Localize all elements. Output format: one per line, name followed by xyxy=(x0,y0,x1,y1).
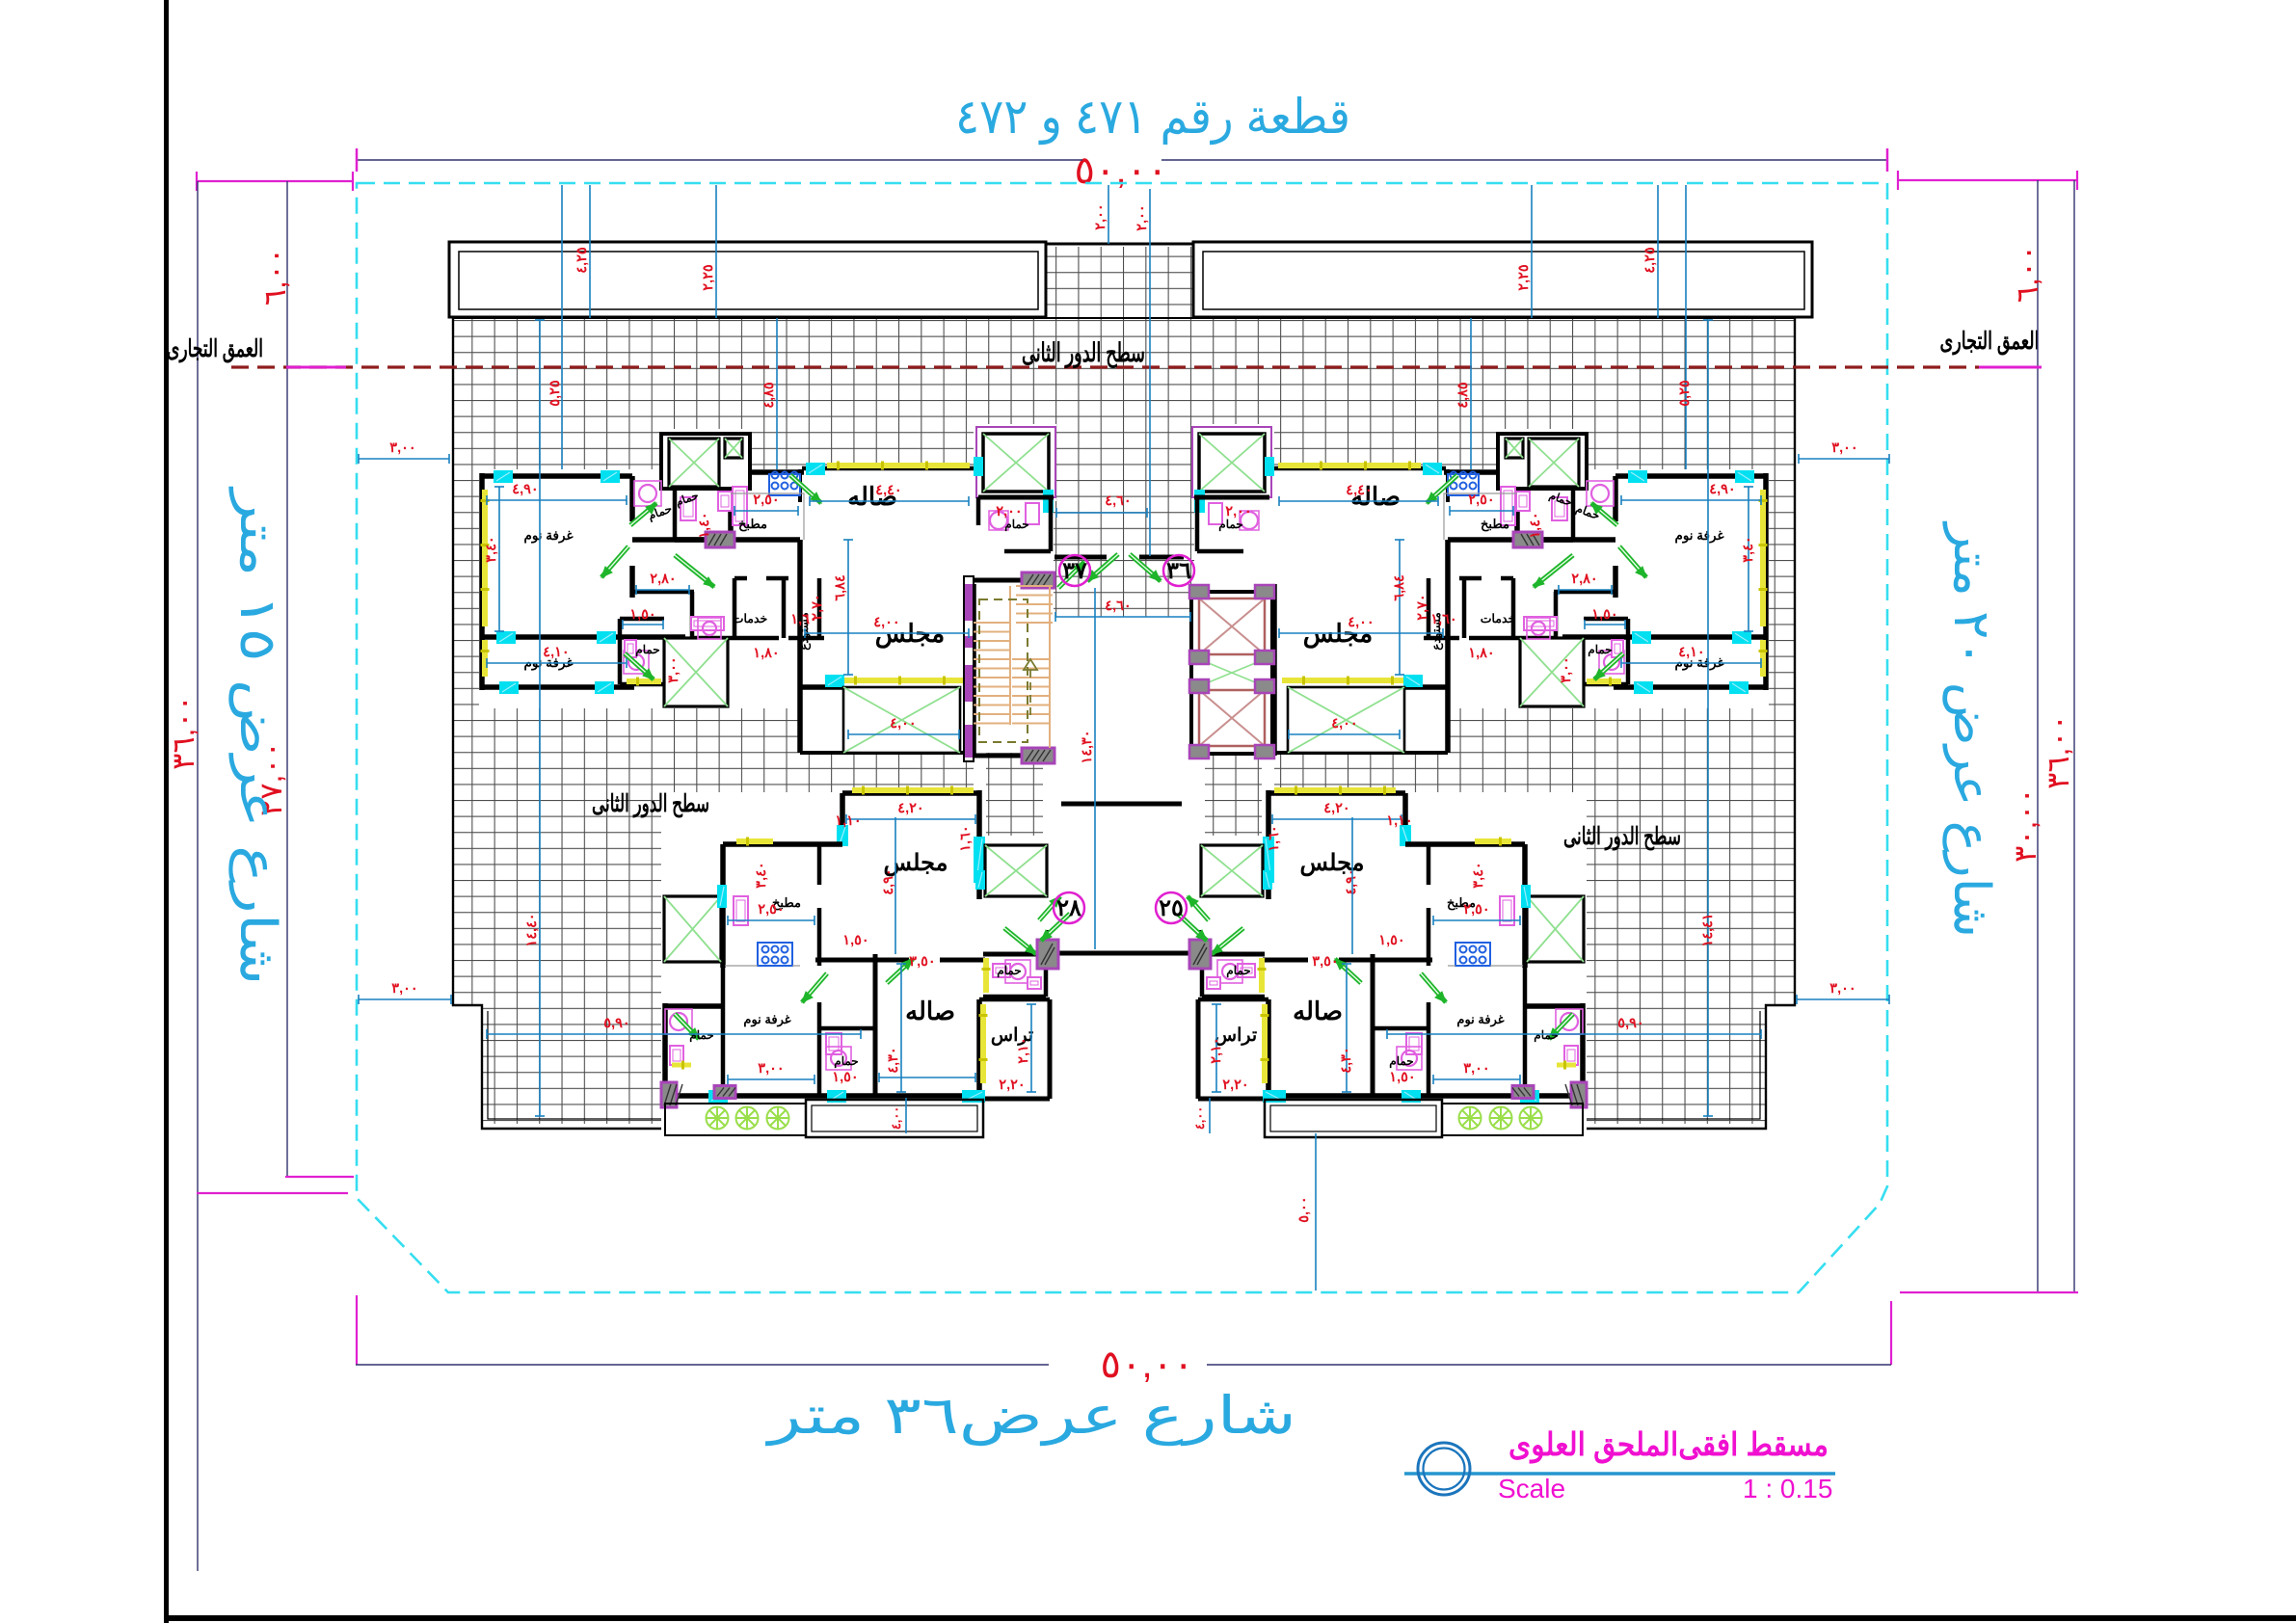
svg-text:٤,١٠: ٤,١٠ xyxy=(1678,645,1704,660)
svg-text:٤,٢٥: ٤,٢٥ xyxy=(1642,247,1658,274)
svg-text:٤,٩٠: ٤,٩٠ xyxy=(1709,482,1735,497)
svg-text:٤,٠٠: ٤,٠٠ xyxy=(890,716,916,732)
svg-text:٤,٢٠: ٤,٢٠ xyxy=(897,801,923,816)
svg-text:العمق التجارى: العمق التجارى xyxy=(167,335,263,363)
svg-text:٤,٤٠: ٤,٤٠ xyxy=(1346,483,1372,498)
svg-text:٣,٤٠: ٣,٤٠ xyxy=(484,536,499,562)
svg-text:٤,٩٠: ٤,٩٠ xyxy=(881,868,896,894)
svg-text:٥,٠٠: ٥,٠٠ xyxy=(1296,1196,1312,1222)
svg-text:خدمات: خدمات xyxy=(1481,612,1516,625)
svg-text:حمام: حمام xyxy=(1004,518,1028,532)
svg-text:٣,٤٠: ٣,٤٠ xyxy=(1471,862,1486,888)
svg-text:سطح الدور الثانى: سطح الدور الثانى xyxy=(1563,823,1681,851)
svg-text:٢,٥٠: ٢,٥٠ xyxy=(1468,492,1494,508)
svg-text:٣٠,٠٠: ٣٠,٠٠ xyxy=(2008,787,2042,863)
svg-text:١,٤٠: ١,٤٠ xyxy=(697,512,712,538)
svg-text:غرفة نوم: غرفة نوم xyxy=(523,528,574,544)
svg-text:٣,٠٠: ٣,٠٠ xyxy=(758,1061,784,1077)
svg-text:١,٦٠: ١,٦٠ xyxy=(1267,825,1282,851)
svg-text:٥,٢٥: ٥,٢٥ xyxy=(1677,380,1693,407)
svg-text:١,٥٠: ١,٥٠ xyxy=(1378,933,1404,948)
svg-text:٥,٩٠: ٥,٩٠ xyxy=(603,1016,629,1031)
svg-text:٢٨: ٢٨ xyxy=(1056,895,1081,921)
svg-text:٢,٨٠: ٢,٨٠ xyxy=(650,572,676,587)
svg-text:٦,٠٠: ٦,٠٠ xyxy=(257,248,292,306)
svg-text:1 : 0.15: 1 : 0.15 xyxy=(1743,1474,1832,1503)
svg-text:١,٦٠: ١,٦٠ xyxy=(958,825,974,851)
svg-text:٣,٠٠: ٣,٠٠ xyxy=(1559,656,1574,682)
svg-text:حمام: حمام xyxy=(997,964,1021,978)
svg-text:٣,٤٠: ٣,٤٠ xyxy=(754,862,769,888)
svg-text:٢,٧٠: ٢,٧٠ xyxy=(1415,594,1430,620)
svg-text:٤,٤٠: ٤,٤٠ xyxy=(875,483,901,498)
svg-text:٤,٨٥: ٤,٨٥ xyxy=(1455,382,1471,409)
svg-text:٢,١٠: ٢,١٠ xyxy=(1209,1037,1224,1063)
svg-text:٤,٠٠: ٤,٠٠ xyxy=(1331,716,1357,732)
svg-text:٢,٥٠: ٢,٥٠ xyxy=(1463,902,1489,918)
svg-text:٣٧: ٣٧ xyxy=(1062,558,1087,584)
svg-text:غرفة نوم: غرفة نوم xyxy=(1674,528,1724,544)
svg-text:٥٠,٠٠: ٥٠,٠٠ xyxy=(1100,1344,1193,1386)
svg-text:١,٥٠: ١,٥٠ xyxy=(1389,1070,1415,1085)
svg-text:٢,٢٥: ٢,٢٥ xyxy=(701,264,716,291)
svg-text:شارع عرض ٢٠ متر: شارع عرض ٢٠ متر xyxy=(1942,520,1999,938)
svg-text:غرفة نوم: غرفة نوم xyxy=(743,1012,790,1027)
svg-text:١,٦٠: ١,٦٠ xyxy=(1430,612,1456,627)
svg-text:٣,٤٠: ٣,٤٠ xyxy=(1741,536,1756,562)
svg-text:حمام: حمام xyxy=(834,1054,858,1069)
svg-text:٥,٩٠: ٥,٩٠ xyxy=(1617,1016,1643,1031)
svg-text:١,١٠: ١,١٠ xyxy=(1386,813,1412,829)
svg-text:٤,٠٠: ٤,٠٠ xyxy=(1192,1106,1207,1131)
svg-text:٣,٠٠: ٣,٠٠ xyxy=(1829,981,1855,997)
svg-text:١,٦٠: ١,٦٠ xyxy=(790,612,816,627)
svg-text:٢,٠٠: ٢,٠٠ xyxy=(1225,504,1251,519)
svg-text:٢,٠٠: ٢,٠٠ xyxy=(1135,204,1150,230)
svg-text:١,٥٠: ١,٥٠ xyxy=(629,607,655,623)
svg-text:١,٨٠: ١,٨٠ xyxy=(753,646,779,661)
svg-text:العمق التجارى: العمق التجارى xyxy=(1940,328,2040,356)
svg-text:٣,٠٠: ٣,٠٠ xyxy=(391,981,417,997)
svg-text:حمام: حمام xyxy=(1218,518,1242,532)
svg-text:٣٦,٠٠: ٣٦,٠٠ xyxy=(2041,714,2075,789)
svg-text:٢,٥٠: ٢,٥٠ xyxy=(753,492,779,508)
svg-text:٤,٢٥: ٤,٢٥ xyxy=(574,247,590,274)
svg-text:١,٥٠: ١,٥٠ xyxy=(832,1070,858,1085)
svg-text:٤,٠٠: ٤,٠٠ xyxy=(873,615,899,630)
svg-text:سطح الدور الثانى: سطح الدور الثانى xyxy=(592,790,709,818)
svg-text:٤,٩٠: ٤,٩٠ xyxy=(512,482,538,497)
svg-text:شارع عرض٣٦ متر: شارع عرض٣٦ متر xyxy=(764,1387,1296,1447)
svg-text:٤,٣٠: ٤,٣٠ xyxy=(1339,1047,1354,1073)
svg-text:٢,١٠: ٢,١٠ xyxy=(1016,1037,1031,1063)
svg-text:حمام: حمام xyxy=(1588,643,1612,657)
svg-text:٤,٦٠: ٤,٦٠ xyxy=(1105,493,1131,509)
svg-text:٢,٥٠: ٢,٥٠ xyxy=(758,902,784,918)
svg-text:حمام: حمام xyxy=(689,1028,713,1043)
svg-text:مطبخ: مطبخ xyxy=(738,517,767,532)
svg-text:٣,٥٠: ٣,٥٠ xyxy=(909,954,935,970)
svg-text:حمام: حمام xyxy=(1389,1054,1413,1069)
svg-text:٣,٠٠: ٣,٠٠ xyxy=(1463,1061,1489,1077)
svg-text:٢,٢٥: ٢,٢٥ xyxy=(1516,264,1532,291)
svg-text:١٤,٤١: ١٤,٤١ xyxy=(1700,913,1716,946)
svg-text:٤,٩٠: ٤,٩٠ xyxy=(1344,868,1359,894)
svg-text:٢,٠٠: ٢,٠٠ xyxy=(1093,203,1108,229)
svg-text:مسقط افقى‌الملحق العلوى: مسقط افقى‌الملحق العلوى xyxy=(1508,1426,1829,1464)
svg-text:٦,٨٤: ٦,٨٤ xyxy=(833,574,848,601)
svg-text:١٤,٣٠: ١٤,٣٠ xyxy=(1080,730,1095,763)
svg-text:٤,٠٠: ٤,٠٠ xyxy=(1348,615,1374,630)
svg-text:خدمات: خدمات xyxy=(733,612,768,625)
svg-text:قطعة رقم ٤٧١ و ٤٧٢: قطعة رقم ٤٧١ و ٤٧٢ xyxy=(955,90,1350,146)
svg-text:حمام: حمام xyxy=(1226,964,1250,978)
svg-text:٦,٨٤: ٦,٨٤ xyxy=(1392,574,1407,601)
svg-text:٢,٨٠: ٢,٨٠ xyxy=(1571,572,1597,587)
svg-text:١٤,٤٠: ١٤,٤٠ xyxy=(524,913,540,946)
svg-text:١,٥٠: ١,٥٠ xyxy=(842,933,868,948)
svg-text:مطبخ: مطبخ xyxy=(1481,517,1509,532)
svg-text:٥٠,٠٠: ٥٠,٠٠ xyxy=(1074,149,1167,192)
svg-text:غرفة نوم: غرفة نوم xyxy=(1456,1012,1504,1027)
svg-text:٤,١٠: ٤,١٠ xyxy=(543,645,569,660)
svg-text:١,١٠: ١,١٠ xyxy=(835,813,861,829)
svg-text:حمام: حمام xyxy=(1534,1028,1558,1043)
svg-text:سطح الدور الثانى: سطح الدور الثانى xyxy=(1022,338,1145,369)
svg-text:٦,٠٠: ٦,٠٠ xyxy=(2010,245,2044,303)
svg-text:٥,٢٥: ٥,٢٥ xyxy=(547,380,563,407)
svg-text:Scale: Scale xyxy=(1498,1474,1565,1503)
svg-text:صاله: صاله xyxy=(1293,997,1343,1025)
svg-text:حمام: حمام xyxy=(635,643,659,657)
svg-text:٣,٥٠: ٣,٥٠ xyxy=(1312,954,1338,970)
svg-text:٣,٠٠: ٣,٠٠ xyxy=(1831,440,1857,456)
svg-text:٢,٢٠: ٢,٢٠ xyxy=(999,1078,1025,1093)
svg-text:٣,٠٠: ٣,٠٠ xyxy=(389,440,415,456)
svg-text:٣٦: ٣٦ xyxy=(1166,558,1191,584)
svg-text:٤,٨٥: ٤,٨٥ xyxy=(761,382,777,409)
svg-text:٣,٠٠: ٣,٠٠ xyxy=(666,656,681,682)
svg-text:٣٦,٠٠: ٣٦,٠٠ xyxy=(166,695,200,770)
svg-text:٤,٣٠: ٤,٣٠ xyxy=(886,1047,901,1073)
svg-text:١,٥٠: ١,٥٠ xyxy=(1591,607,1617,623)
svg-text:١,٨٠: ١,٨٠ xyxy=(1468,646,1494,661)
svg-text:شارع عرض ١٥ متر: شارع عرض ١٥ متر xyxy=(228,486,285,986)
svg-text:٢,٢٠: ٢,٢٠ xyxy=(1222,1078,1248,1093)
svg-text:٤,٦٠: ٤,٦٠ xyxy=(1105,599,1131,614)
svg-text:٤,٠٠: ٤,٠٠ xyxy=(889,1106,903,1131)
svg-text:٤,٢٠: ٤,٢٠ xyxy=(1323,801,1349,816)
svg-text:٢,٠٠: ٢,٠٠ xyxy=(996,504,1022,519)
svg-text:صاله: صاله xyxy=(905,997,955,1025)
svg-text:٢٥: ٢٥ xyxy=(1159,895,1184,921)
svg-text:١,٤٠: ١,٤٠ xyxy=(1528,512,1543,538)
